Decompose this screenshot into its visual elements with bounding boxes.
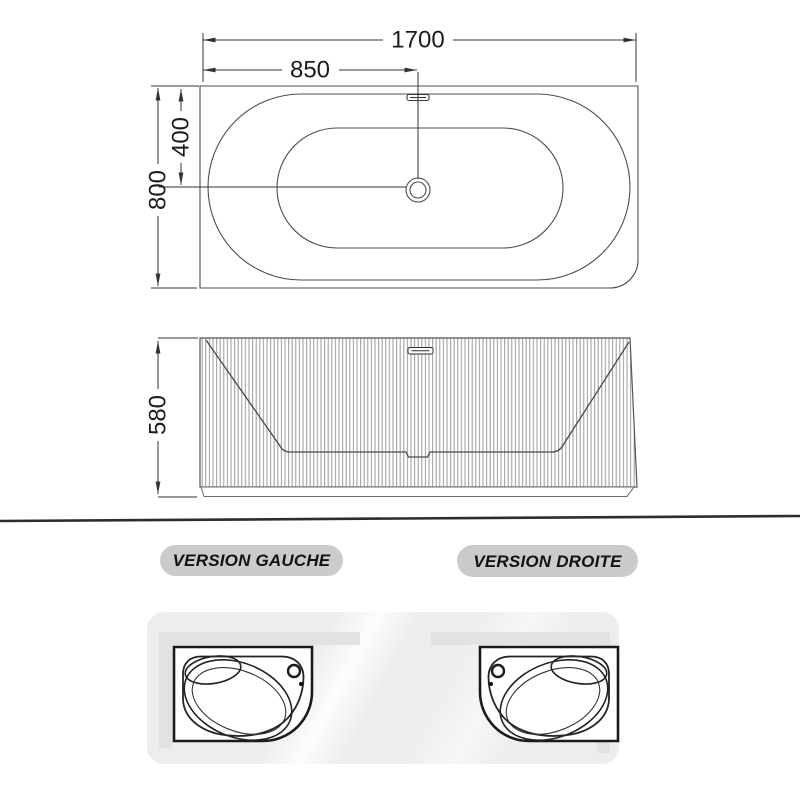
corner-tub-right-plan	[480, 645, 620, 756]
corner-tub-left-plan	[172, 645, 312, 756]
wall-side-left	[159, 632, 172, 748]
version-droite-badge: VERSION DROITE	[457, 545, 638, 577]
wall-top-left	[159, 632, 360, 645]
jet-dot	[299, 682, 303, 686]
version-gauche-badge: VERSION GAUCHE	[160, 545, 343, 576]
bathtub-spec-sheet: 1700 850 400 800 580	[0, 0, 800, 800]
wall-top-right	[431, 632, 610, 645]
drain-icon	[288, 665, 300, 677]
version-diagrams	[0, 0, 800, 800]
